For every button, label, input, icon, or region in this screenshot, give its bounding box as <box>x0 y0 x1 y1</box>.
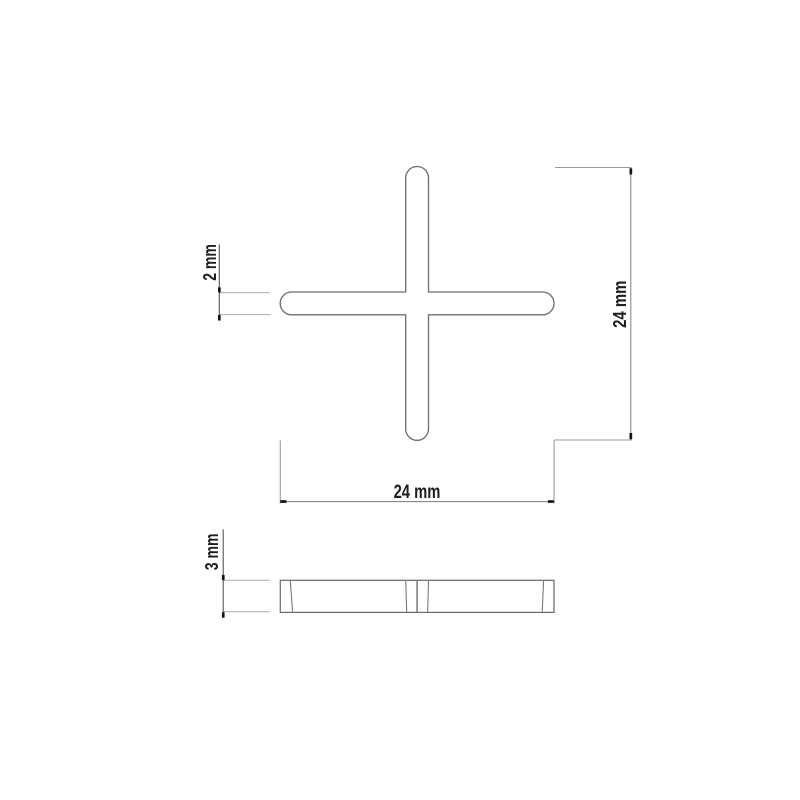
svg-text:3 mm: 3 mm <box>202 534 222 571</box>
svg-text:24 mm: 24 mm <box>610 281 630 328</box>
svg-text:24 mm: 24 mm <box>394 481 441 503</box>
svg-text:2 mm: 2 mm <box>200 244 220 281</box>
